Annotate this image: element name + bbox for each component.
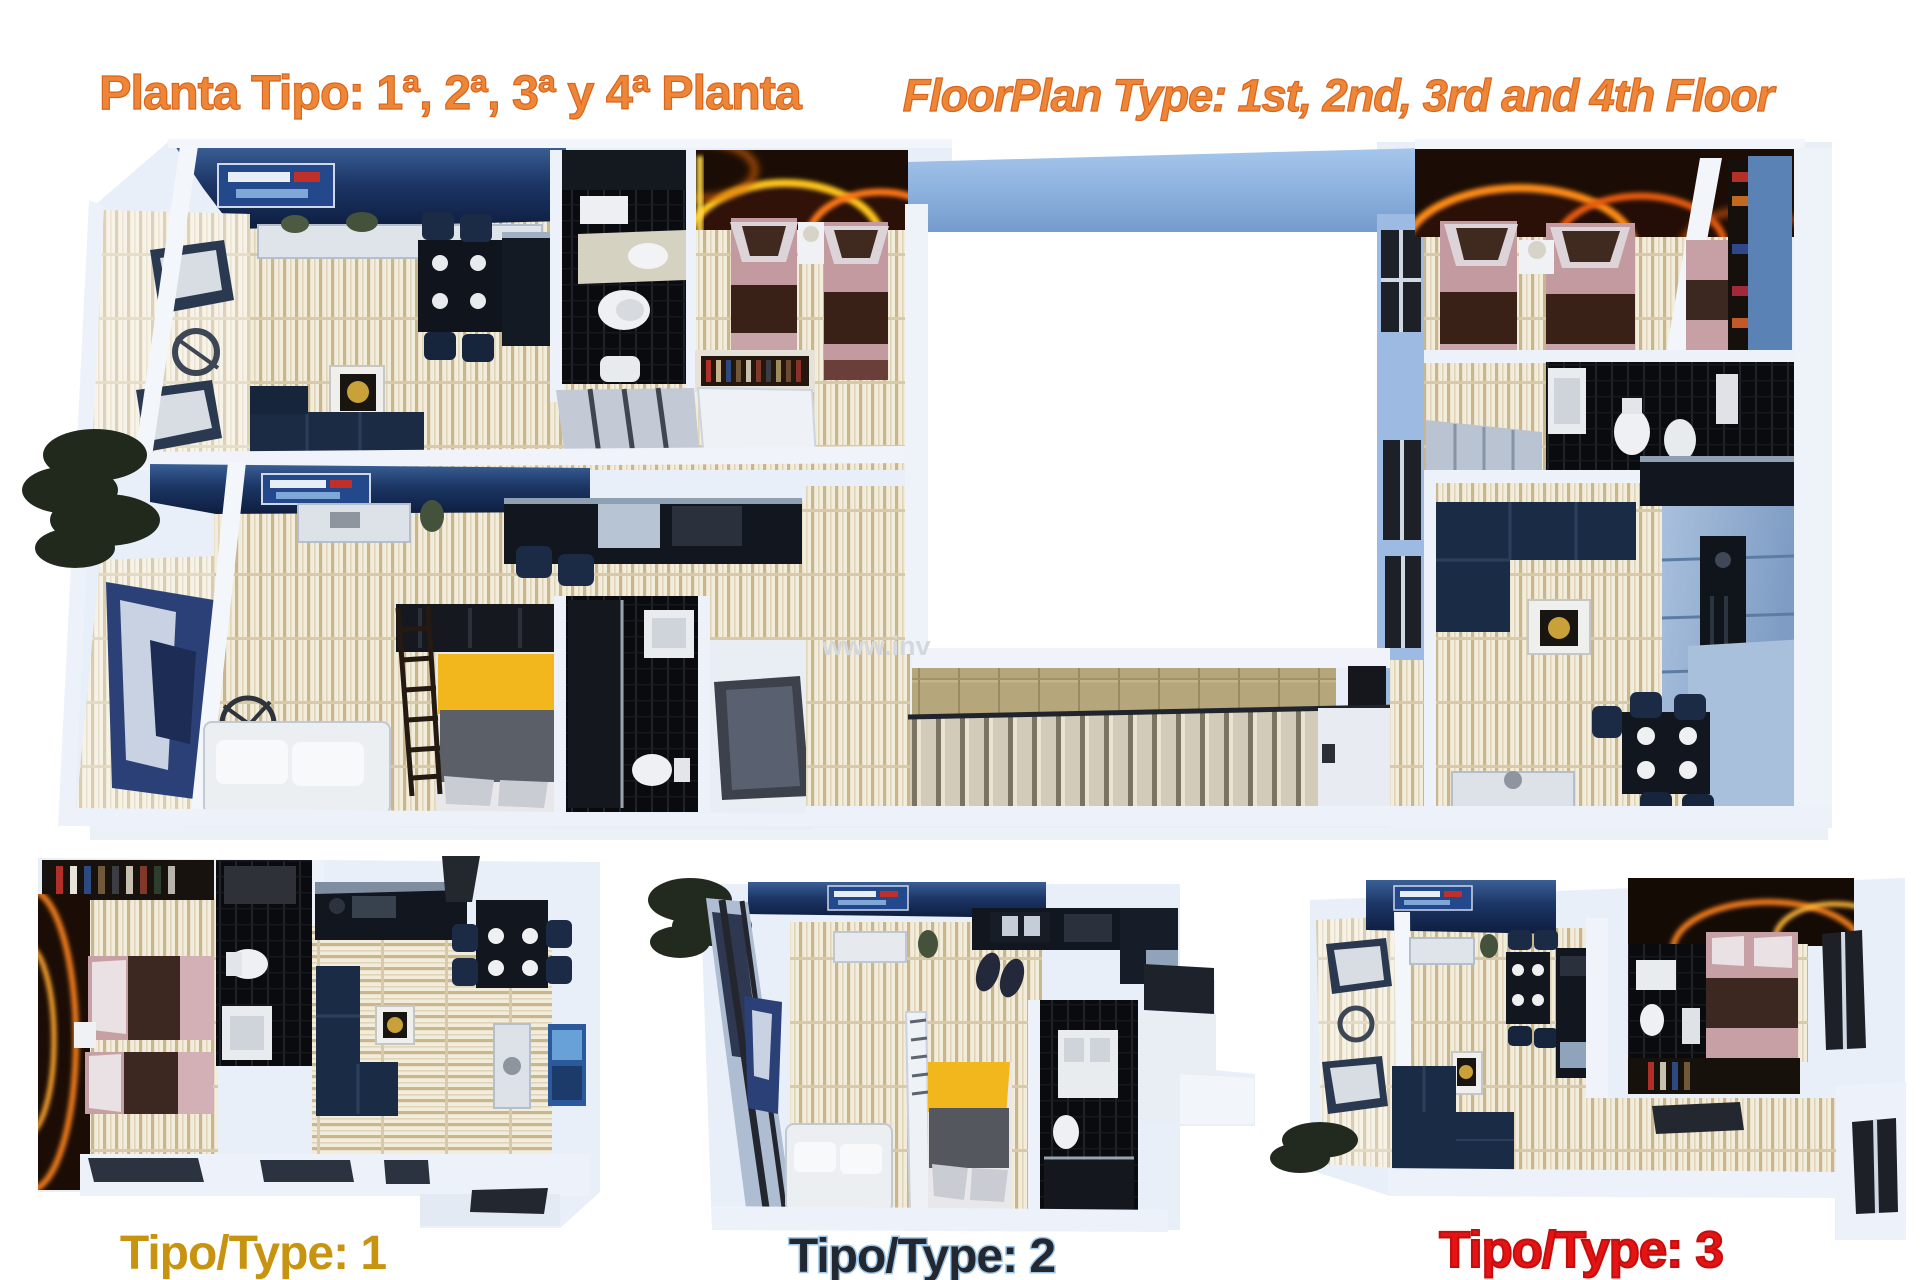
svg-text:Tipo/Type: 3: Tipo/Type: 3 xyxy=(1439,1221,1723,1278)
svg-text:Tipo/Type: 1: Tipo/Type: 1 xyxy=(120,1227,387,1280)
svg-text:FloorPlan Type: 1st, 2nd, 3rd: FloorPlan Type: 1st, 2nd, 3rd and 4th Fl… xyxy=(903,70,1777,121)
svg-text:Planta Tipo: 1ª, 2ª, 3ª y 4ª P: Planta Tipo: 1ª, 2ª, 3ª y 4ª Planta xyxy=(99,66,803,120)
svg-text:www.inv: www.inv xyxy=(821,631,931,661)
svg-text:Tipo/Type: 2: Tipo/Type: 2 xyxy=(789,1230,1055,1280)
